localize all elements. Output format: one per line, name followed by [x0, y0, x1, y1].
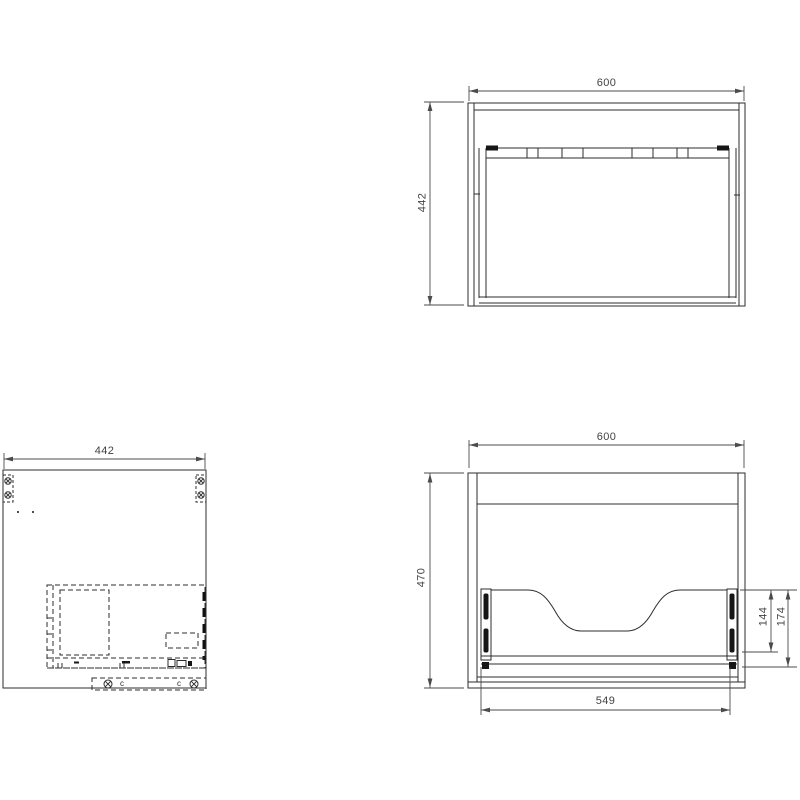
rear-view-drawing	[468, 473, 745, 688]
plan-view-drawing	[468, 103, 745, 306]
dim-label-plan-width: 600	[468, 77, 745, 90]
arrowhead	[769, 643, 774, 652]
dimension-linework	[4, 86, 797, 715]
side-outer-panel	[3, 470, 206, 688]
dim-label-plan-depth: 442	[417, 181, 430, 225]
fitting-mark	[188, 661, 192, 666]
fitting-mark	[122, 661, 130, 664]
plan-left-bracket	[486, 146, 498, 151]
dim-label-rear-width: 600	[468, 431, 745, 444]
drawing-canvas: 600 442 442 600 470 549 144 174 c c	[0, 0, 800, 800]
arrowhead	[481, 708, 490, 713]
plan-right-bracket	[717, 146, 729, 151]
dim-label-drawer-width: 549	[481, 695, 730, 708]
dim-label-side-depth: 442	[3, 445, 206, 458]
rear-left-slide-roller	[484, 594, 489, 620]
rear-right-slide-roller	[730, 594, 735, 620]
side-view-drawing	[3, 470, 206, 690]
fitting-mark	[168, 660, 175, 667]
rear-left-slide-foot	[482, 662, 489, 669]
plan-outer-carcass	[468, 103, 745, 306]
dim-label-slide-outer: 174	[776, 595, 789, 639]
fitting-mark	[177, 661, 186, 667]
side-hidden-box	[60, 590, 109, 655]
cam-label-right: c	[174, 679, 184, 689]
dim-label-rear-height: 470	[416, 556, 429, 600]
pilot-hole-dot	[32, 511, 34, 513]
arrowhead	[428, 102, 433, 111]
arrowhead	[786, 658, 791, 667]
side-hidden-block	[166, 633, 198, 648]
rear-right-slide-roller	[730, 629, 735, 653]
arrowhead	[428, 474, 433, 483]
arrowhead	[721, 708, 730, 713]
arrowhead	[428, 679, 433, 688]
rear-panel-cutout-curve	[491, 590, 727, 631]
side-drawer-hidden-outline	[47, 585, 205, 668]
cam-label-left: c	[117, 679, 127, 689]
dim-label-slide-inner: 144	[758, 595, 771, 639]
arrowhead	[428, 296, 433, 305]
rear-left-slide-roller	[484, 629, 489, 653]
pilot-hole-dot	[17, 511, 19, 513]
fitting-mark	[74, 662, 79, 664]
